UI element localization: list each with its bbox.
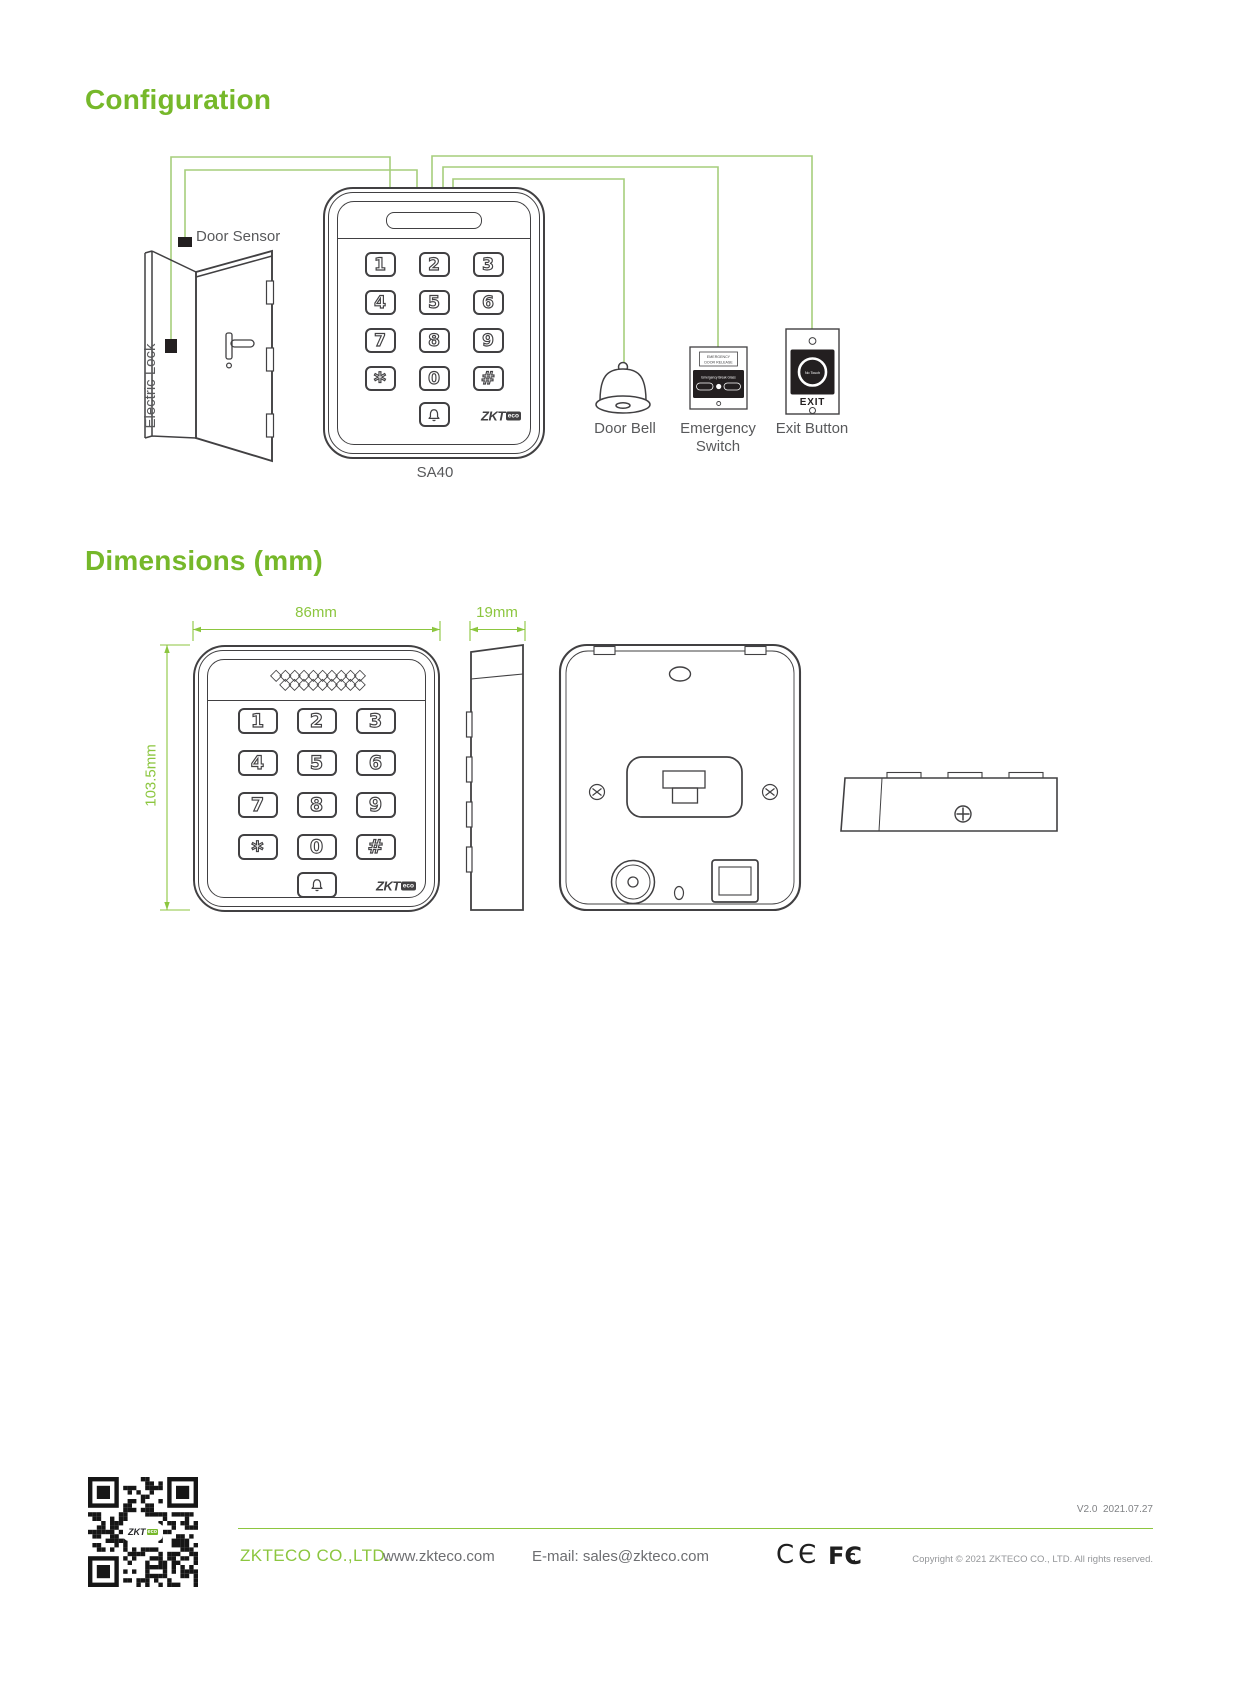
footer-company: ZKTECO CO.,LTD. (240, 1546, 390, 1566)
emergency-header-line1: EMERGENCY (707, 355, 731, 359)
configuration-title: Configuration (85, 84, 271, 116)
key-bell (297, 872, 337, 898)
ce-mark: CЄ (776, 1540, 820, 1570)
fcc-inner: C (847, 1551, 856, 1565)
speaker-grille: ◇◇◇◇◇◇◇◇◇◇◇◇◇◇◇◇◇◇◇ (270, 671, 363, 689)
key-3: 3 (356, 708, 396, 734)
emergency-switch-drawing: EMERGENCY DOOR RELEASE Emergency Break G… (690, 347, 747, 409)
bell-icon (425, 407, 443, 423)
key-hash: # (356, 834, 396, 860)
key-4: 4 (365, 290, 396, 315)
bell-icon (308, 877, 326, 893)
zkteco-logo-qr: ZKTeco (125, 1525, 161, 1539)
screw-left (590, 785, 605, 800)
keypad-top-panel (338, 202, 530, 239)
back-view-drawing (560, 645, 800, 910)
footer-divider (238, 1528, 1153, 1529)
key-6: 6 (473, 290, 504, 315)
electric-lock-label: Electric Lock (142, 330, 160, 442)
depth-dim-label: 19mm (452, 604, 542, 621)
key-hash: # (473, 366, 504, 391)
keypad-keys: 123456789*0# (338, 239, 530, 391)
side-view-drawing (467, 645, 524, 910)
key-2: 2 (419, 252, 450, 277)
door-sensor-label: Door Sensor (196, 228, 280, 246)
key-8: 8 (419, 328, 450, 353)
key-2: 2 (297, 708, 337, 734)
key-0: 0 (419, 366, 450, 391)
key-4: 4 (238, 750, 278, 776)
zkteco-logo: ZKTeco (376, 879, 416, 894)
keypad-keys: 123456789*0# (208, 701, 425, 860)
keypad-bell-row: ZKTeco (208, 872, 425, 898)
key-5: 5 (419, 290, 450, 315)
keypad-front-view: ◇◇◇◇◇◇◇◇◇◇◇◇◇◇◇◇◇◇◇123456789*0#ZKTeco (193, 645, 440, 912)
door-bell-label: Door Bell (575, 420, 675, 438)
emergency-switch-label-line2: Switch (663, 438, 773, 456)
device-model-label: SA40 (385, 464, 485, 482)
top-view-drawing (841, 773, 1057, 832)
keypad-top-panel: ◇◇◇◇◇◇◇◇◇◇◇◇◇◇◇◇◇◇◇ (208, 660, 425, 701)
emergency-header-line2: DOOR RELEASE (704, 361, 733, 365)
screw-top-view (955, 806, 971, 822)
datasheet-page: EMERGENCY DOOR RELEASE Emergency Break G… (0, 0, 1241, 1684)
led-window (386, 212, 482, 229)
height-dim-label: 103.5mm (143, 720, 160, 832)
key-6: 6 (356, 750, 396, 776)
footer-email: E-mail: sales@zkteco.com (532, 1548, 709, 1565)
line-art-layer: EMERGENCY DOOR RELEASE Emergency Break G… (0, 0, 1241, 1684)
door-drawing (145, 251, 274, 461)
fcc-outer: FC (828, 1542, 862, 1570)
key-bell (419, 402, 450, 427)
door-sensor-block (178, 237, 192, 247)
key-star: * (365, 366, 396, 391)
width-dim-label: 86mm (266, 604, 366, 621)
emergency-panel-text: Emergency Break Glass (701, 376, 736, 380)
key-3: 3 (473, 252, 504, 277)
keypad-bell-row: ZKTeco (338, 402, 530, 427)
key-1: 1 (365, 252, 396, 277)
footer-website: www.zkteco.com (383, 1548, 495, 1565)
doc-version: V2.0 2021.07.27 (1077, 1504, 1153, 1515)
no-touch-text: No Touch (805, 371, 820, 375)
exit-text: EXIT (800, 397, 825, 408)
fcc-mark: FCC (828, 1542, 856, 1570)
keypad-face: 123456789*0#ZKTeco (337, 201, 531, 445)
key-7: 7 (365, 328, 396, 353)
logo-zkt-text: ZKT (128, 1527, 146, 1537)
key-5: 5 (297, 750, 337, 776)
keypad-face: ◇◇◇◇◇◇◇◇◇◇◇◇◇◇◇◇◇◇◇123456789*0#ZKTeco (207, 659, 426, 898)
door-bell-drawing (596, 363, 650, 414)
key-1: 1 (238, 708, 278, 734)
emergency-switch-label-line1: Emergency (663, 420, 773, 438)
screw-right (763, 785, 778, 800)
emergency-switch-label: Emergency Switch (663, 420, 773, 456)
key-8: 8 (297, 792, 337, 818)
exit-button-drawing: No Touch EXIT (786, 329, 839, 414)
key-9: 9 (473, 328, 504, 353)
electric-lock-block (165, 339, 177, 353)
key-9: 9 (356, 792, 396, 818)
key-0: 0 (297, 834, 337, 860)
zkteco-logo: ZKTeco (481, 408, 521, 423)
key-7: 7 (238, 792, 278, 818)
exit-button-label: Exit Button (762, 420, 862, 438)
qr-code: ZKTeco (88, 1477, 198, 1587)
logo-eco-badge: eco (147, 1529, 158, 1535)
footer-copyright: Copyright © 2021 ZKTECO CO., LTD. All ri… (912, 1554, 1153, 1565)
keypad-device-front: 123456789*0#ZKTeco (323, 187, 545, 459)
dimensions-title: Dimensions (mm) (85, 545, 323, 577)
key-star: * (238, 834, 278, 860)
